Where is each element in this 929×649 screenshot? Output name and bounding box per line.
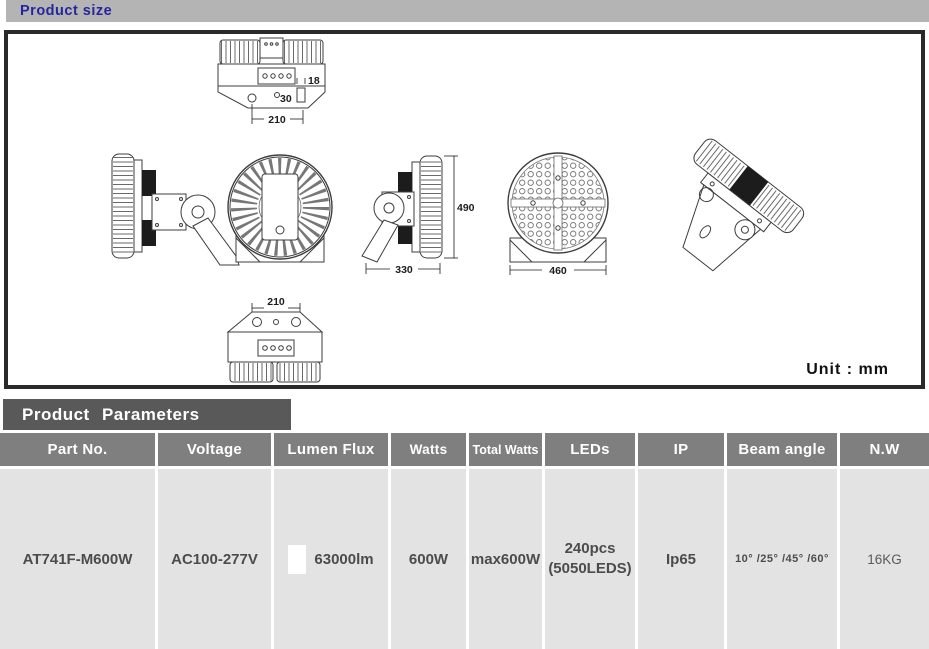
dim-side-width: 330 bbox=[395, 264, 413, 276]
dim-bottom-width: 210 bbox=[267, 296, 285, 308]
dim-top-offset: 18 bbox=[308, 75, 320, 87]
col-header-watts: Watts bbox=[391, 433, 466, 466]
dim-top-width: 210 bbox=[268, 114, 286, 126]
leds-count: 240pcs bbox=[565, 539, 616, 559]
cell-beam-angle: 10° /25° /45° /60° bbox=[727, 469, 837, 649]
dim-front-diameter: 460 bbox=[549, 265, 567, 277]
cell-watts: 600W bbox=[391, 469, 466, 649]
cell-net-weight: 16KG bbox=[840, 469, 929, 649]
cell-lumen-flux: 63000lm bbox=[274, 469, 388, 649]
col-header-leds: LEDs bbox=[545, 433, 635, 466]
cell-total-watts: max600W bbox=[469, 469, 542, 649]
bottom-view-drawing: 210 bbox=[228, 296, 322, 382]
lumen-flux-value: 63000lm bbox=[314, 551, 373, 568]
page-title: Product size bbox=[20, 3, 112, 19]
col-header-total-watts: Total Watts bbox=[469, 433, 542, 466]
technical-drawings: 18 30 210 bbox=[8, 34, 921, 385]
parameters-table: Part No. Voltage Lumen Flux Watts Total … bbox=[0, 433, 929, 649]
dim-top-inset: 30 bbox=[280, 93, 292, 105]
side-view-left-drawing bbox=[112, 154, 239, 265]
top-view-drawing: 18 30 210 bbox=[218, 38, 325, 126]
unit-label: Unit : mm bbox=[806, 361, 889, 379]
product-parameters-bar: Product Parameters bbox=[3, 399, 291, 430]
page-header-bar: Product size bbox=[6, 0, 929, 22]
cell-leds: 240pcs (5050LEDS) bbox=[545, 469, 635, 649]
dim-side-height: 490 bbox=[457, 202, 475, 214]
cell-part-no: AT741F-M600W bbox=[0, 469, 155, 649]
side-view-dimensioned-drawing: 490 330 bbox=[362, 156, 479, 276]
col-header-net-weight: N.W bbox=[840, 433, 929, 466]
col-header-lumen-flux: Lumen Flux bbox=[274, 433, 388, 466]
leds-type: (5050LEDS) bbox=[548, 559, 631, 579]
col-header-beam-angle: Beam angle bbox=[727, 433, 837, 466]
front-view-drawing: 460 bbox=[508, 153, 608, 277]
white-color-swatch bbox=[288, 545, 306, 574]
col-header-part-no: Part No. bbox=[0, 433, 155, 466]
perspective-view-drawing bbox=[645, 136, 807, 294]
cell-ip: Ip65 bbox=[638, 469, 724, 649]
back-view-drawing bbox=[228, 155, 332, 262]
col-header-ip: IP bbox=[638, 433, 724, 466]
product-parameters-title: Product Parameters bbox=[22, 405, 200, 425]
cell-voltage: AC100-277V bbox=[158, 469, 271, 649]
col-header-voltage: Voltage bbox=[158, 433, 271, 466]
product-size-panel: 18 30 210 bbox=[4, 30, 925, 389]
